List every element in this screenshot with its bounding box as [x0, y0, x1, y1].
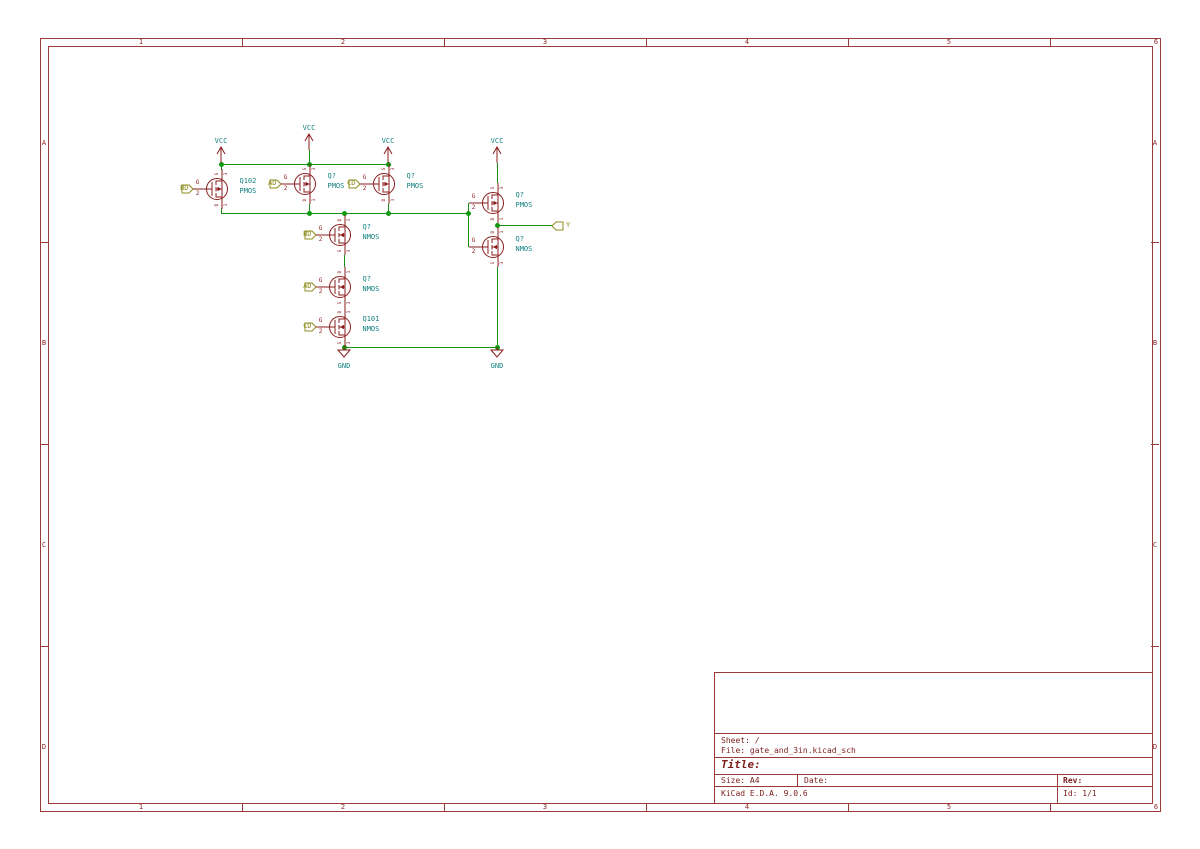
titleblock-size: Size: A4: [721, 776, 760, 786]
row-tick: [40, 444, 48, 445]
gate-pin-number: 2: [466, 249, 482, 255]
grid-row-label: A: [1151, 139, 1159, 147]
titleblock-sheet-file-cell: Sheet: / File: gate_and_3in.kicad_sch: [714, 733, 1152, 757]
pin-name-top: S: [302, 167, 308, 170]
col-tick: [848, 803, 849, 811]
grid-row-label: D: [40, 743, 48, 751]
pin-name-top: D: [337, 310, 343, 313]
titleblock-rev: Rev:: [1063, 776, 1082, 786]
col-tick: [646, 803, 647, 811]
grid-col-label: 6: [1146, 38, 1166, 46]
value-field[interactable]: NMOS: [363, 285, 380, 293]
gate-pin-name: G: [190, 180, 206, 186]
value-field[interactable]: NMOS: [516, 245, 533, 253]
pin-name-top: D: [337, 218, 343, 221]
nmos-symbol-icon: D 1 S 3: [312, 297, 368, 357]
vcc-power-symbol[interactable]: [300, 132, 318, 152]
reference-designator[interactable]: Q?: [363, 275, 371, 283]
grid-col-label: 4: [737, 803, 757, 811]
wire-inverter-gnd[interactable]: [497, 267, 498, 347]
pin-name-top: D: [337, 270, 343, 273]
pin-number-bottom: 3: [346, 249, 352, 252]
pin-number-bottom: 3: [346, 341, 352, 344]
pin-number-bottom: 3: [499, 261, 505, 264]
titleblock-app-cell: KiCad E.D.A. 9.0.6: [714, 786, 1057, 803]
pin-number-top: 1: [346, 218, 352, 221]
grid-col-label: 2: [333, 803, 353, 811]
titleblock-id-cell: Id: 1/1: [1057, 786, 1152, 803]
grid-col-label: 3: [535, 38, 555, 46]
pin-number-top: 3: [499, 186, 505, 189]
grid-col-label: 2: [333, 38, 353, 46]
value-field[interactable]: PMOS: [407, 182, 424, 190]
grid-col-label: 6: [1146, 803, 1166, 811]
row-tick: [1151, 646, 1159, 647]
value-field[interactable]: PMOS: [328, 182, 345, 190]
gate-pin-name: G: [313, 226, 329, 232]
gnd-label: GND: [482, 362, 512, 371]
gnd-label: GND: [329, 362, 359, 371]
grid-col-label: 1: [131, 38, 151, 46]
pin-number-bottom: 1: [223, 203, 229, 206]
reference-designator[interactable]: Q102: [240, 177, 257, 185]
titleblock-title: Title:: [721, 760, 761, 770]
gate-pin-name: G: [466, 194, 482, 200]
row-tick: [1151, 242, 1159, 243]
pin-number-top: 3: [223, 172, 229, 175]
titleblock-file: File: gate_and_3in.kicad_sch: [721, 746, 856, 756]
gate-pin-name: G: [278, 175, 294, 181]
grid-col-label: 5: [939, 38, 959, 46]
gate-pin-number: 2: [357, 186, 373, 192]
row-tick: [40, 646, 48, 647]
pin-name-top: S: [490, 186, 496, 189]
transistor-q102-pmos[interactable]: S 3 D 1 G 2 Q102 PMOS: [189, 159, 289, 219]
titleblock-sheet: Sheet: /: [721, 736, 760, 746]
col-tick: [242, 38, 243, 46]
pin-name-bottom: D: [214, 203, 220, 206]
hier-label-y-output[interactable]: Y: [566, 221, 570, 230]
reference-designator[interactable]: Q101: [363, 315, 380, 323]
grid-col-label: 1: [131, 803, 151, 811]
value-field[interactable]: PMOS: [240, 187, 257, 195]
value-field[interactable]: NMOS: [363, 325, 380, 333]
col-tick: [242, 803, 243, 811]
grid-row-label: D: [1151, 743, 1159, 751]
pin-name-bottom: S: [490, 261, 496, 264]
titleblock-date: Date:: [804, 776, 828, 786]
gate-pin-number: 2: [313, 329, 329, 335]
pmos-symbol-icon: S 3 D 1: [189, 159, 245, 219]
titleblock-app-version: KiCad E.D.A. 9.0.6: [721, 789, 808, 799]
grid-row-label: C: [40, 541, 48, 549]
reference-designator[interactable]: Q?: [516, 235, 524, 243]
grid-col-label: 3: [535, 803, 555, 811]
gate-pin-number: 2: [313, 237, 329, 243]
pin-name-top: S: [381, 167, 387, 170]
gate-pin-name: G: [466, 238, 482, 244]
grid-row-label: A: [40, 139, 48, 147]
titleblock-rev-cell: Rev:: [1057, 774, 1152, 786]
transistor-nmos-bd[interactable]: D 1 S 3 G 2 Q? NMOS: [312, 205, 412, 265]
col-tick: [1050, 803, 1051, 811]
pin-name-bottom: S: [337, 341, 343, 344]
pin-number-top: 3: [311, 167, 317, 170]
gate-pin-number: 2: [466, 205, 482, 211]
col-tick: [646, 38, 647, 46]
pin-number-top: 3: [390, 167, 396, 170]
gate-pin-number: 2: [278, 186, 294, 192]
grid-col-label: 5: [939, 803, 959, 811]
titleblock-sheet-id: Id: 1/1: [1063, 789, 1097, 799]
grid-row-label: B: [40, 339, 48, 347]
row-tick: [1151, 444, 1159, 445]
titleblock-title-cell: Title:: [714, 757, 1152, 774]
pin-name-top: S: [214, 172, 220, 175]
row-tick: [40, 242, 48, 243]
gate-pin-name: G: [313, 318, 329, 324]
reference-designator[interactable]: Q?: [407, 172, 415, 180]
col-tick: [1050, 38, 1051, 46]
pin-name-bottom: D: [381, 198, 387, 201]
pin-number-top: 1: [346, 310, 352, 313]
pin-number-top: 1: [346, 270, 352, 273]
gnd-power-symbol[interactable]: [489, 347, 505, 359]
pin-name-top: D: [490, 230, 496, 233]
col-tick: [444, 803, 445, 811]
transistor-q101-nmos[interactable]: D 1 S 3 G 2 Q101 NMOS: [312, 297, 412, 357]
gate-pin-number: 2: [313, 289, 329, 295]
reference-designator[interactable]: Q?: [328, 172, 336, 180]
pin-number-bottom: 1: [311, 198, 317, 201]
value-field[interactable]: NMOS: [363, 233, 380, 241]
pin-number-bottom: 1: [390, 198, 396, 201]
gate-pin-name: G: [313, 278, 329, 284]
grid-row-label: B: [1151, 339, 1159, 347]
nmos-symbol-icon: D 1 S 3: [312, 205, 368, 265]
pin-number-top: 1: [499, 230, 505, 233]
value-field[interactable]: PMOS: [516, 201, 533, 209]
col-tick: [848, 38, 849, 46]
gate-pin-number: 2: [190, 191, 206, 197]
pin-name-bottom: D: [302, 198, 308, 201]
pin-name-bottom: S: [337, 249, 343, 252]
col-tick: [444, 38, 445, 46]
titleblock-date-cell: Date:: [797, 774, 1057, 786]
nmos-symbol-icon: D 1 S 3: [465, 217, 521, 277]
grid-row-label: C: [1151, 541, 1159, 549]
grid-col-label: 4: [737, 38, 757, 46]
titleblock-size-cell: Size: A4: [714, 774, 797, 786]
vcc-power-symbol[interactable]: [488, 145, 506, 165]
reference-designator[interactable]: Q?: [363, 223, 371, 231]
reference-designator[interactable]: Q?: [516, 191, 524, 199]
titleblock-comment-box: [714, 672, 1153, 734]
gate-pin-name: G: [357, 175, 373, 181]
transistor-nmos-inverter[interactable]: D 1 S 3 G 2 Q? NMOS: [465, 217, 565, 277]
schematic-canvas[interactable]: 1 2 3 4 5 6 1 2 3 4 5 6 A B C D A B C D …: [0, 0, 1200, 849]
